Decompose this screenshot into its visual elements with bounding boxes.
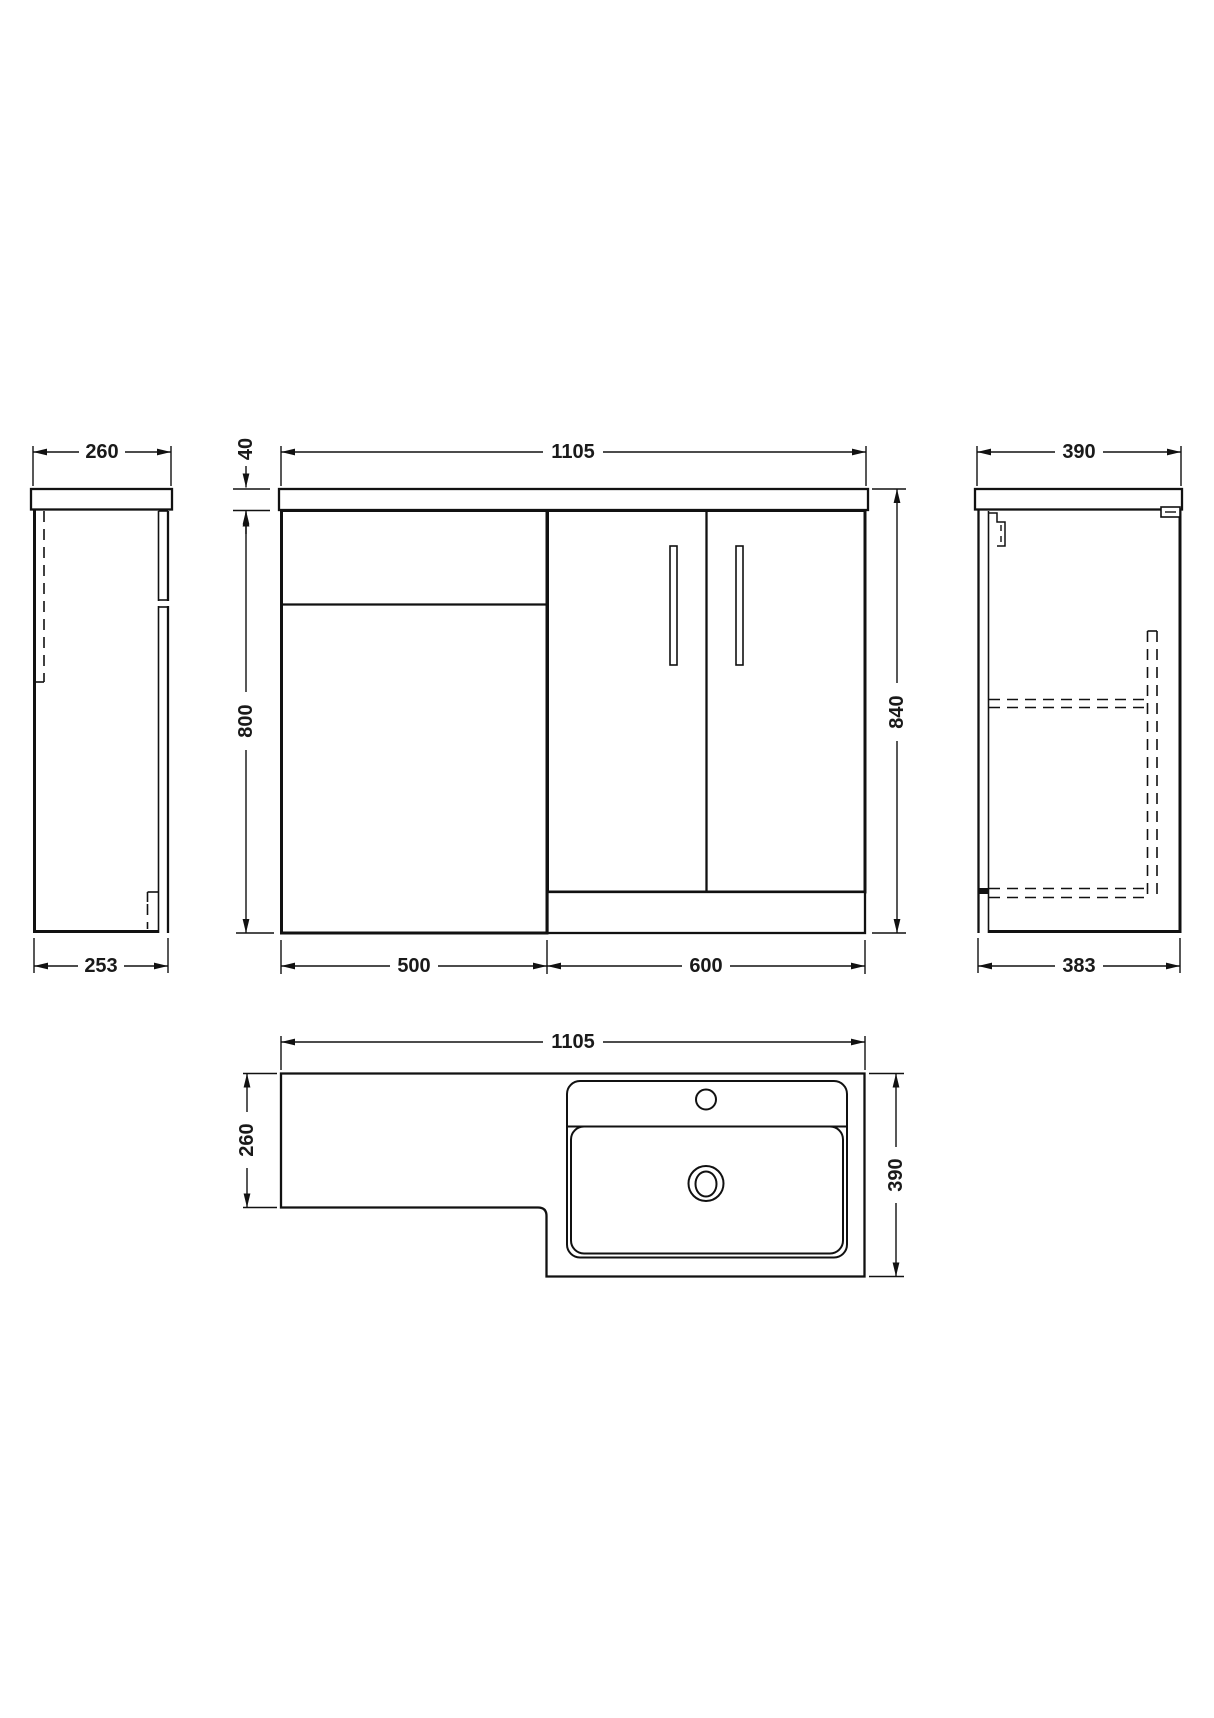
front-plinth bbox=[548, 892, 866, 933]
dim-label-front-wc-width: 500 bbox=[397, 955, 430, 977]
side-right-door-bottom-block bbox=[978, 888, 989, 894]
side-right-worktop bbox=[975, 489, 1182, 510]
dim-label-front-total-height: 840 bbox=[886, 695, 908, 728]
front-left-door-handle bbox=[670, 546, 677, 665]
front-worktop bbox=[279, 489, 868, 510]
dim-label-plan-left-depth: 260 bbox=[236, 1123, 258, 1156]
side-left-worktop bbox=[31, 489, 172, 510]
dim-label-plan-right-depth: 390 bbox=[885, 1158, 907, 1191]
front-right-door-handle bbox=[736, 546, 743, 665]
dim-label-front-vanity-width: 600 bbox=[689, 955, 722, 977]
dim-label-front-cabinet-height: 800 bbox=[235, 704, 257, 737]
vanity-unit-dimension-drawing: 260 253 1105 bbox=[0, 0, 1214, 1718]
dim-label-side-left-base-depth: 253 bbox=[84, 955, 117, 977]
dim-label-side-left-depth: 260 bbox=[85, 441, 118, 463]
dim-label-front-width: 1105 bbox=[551, 441, 594, 463]
dim-label-plan-width: 1105 bbox=[551, 1031, 594, 1053]
technical-drawing-page: 260 253 1105 bbox=[0, 0, 1214, 1718]
front-wc-unit-panel bbox=[282, 511, 548, 934]
dim-label-side-right-base-depth: 383 bbox=[1062, 955, 1095, 977]
view-front: 1105 40 800 840 5 bbox=[233, 438, 910, 977]
dim-label-front-worktop-thickness: 40 bbox=[235, 438, 257, 460]
dim-label-side-right-depth: 390 bbox=[1062, 441, 1095, 463]
